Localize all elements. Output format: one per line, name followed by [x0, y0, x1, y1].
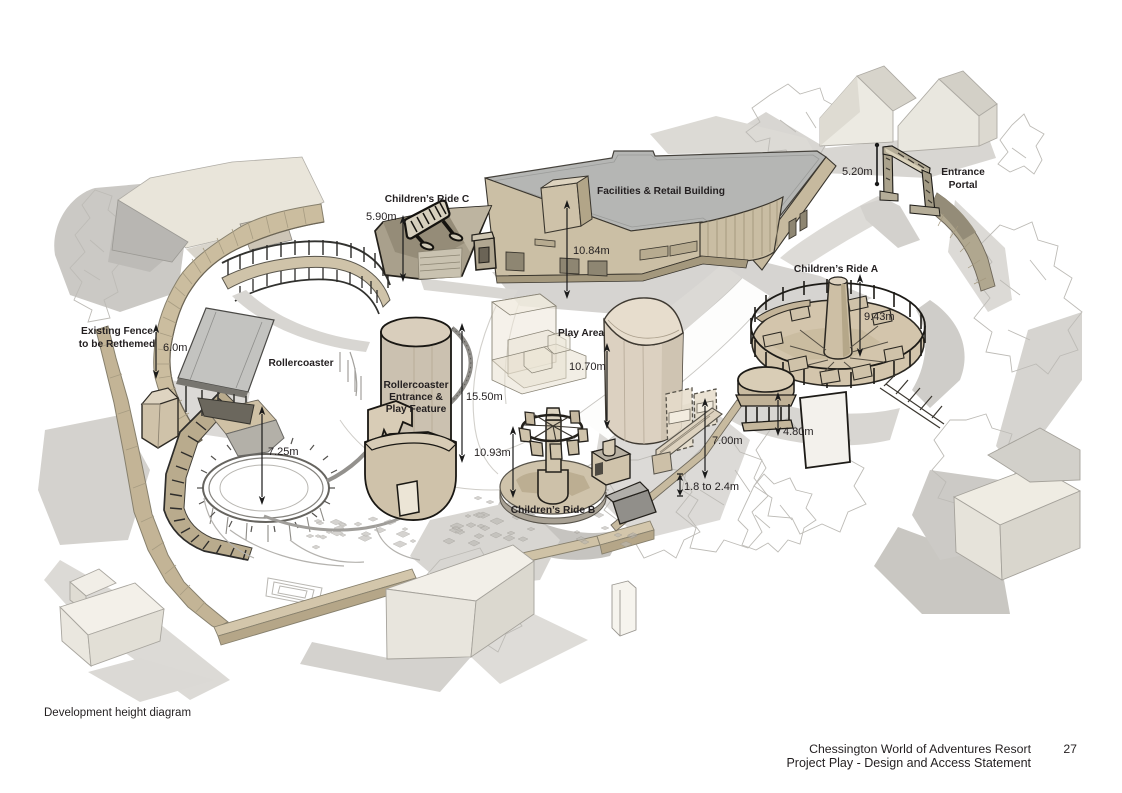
svg-text:10.70m: 10.70m: [569, 361, 606, 373]
svg-text:7.00m: 7.00m: [712, 435, 743, 447]
svg-text:Entrance &: Entrance &: [389, 392, 443, 403]
svg-text:10.93m: 10.93m: [474, 447, 511, 459]
svg-text:Children’s Ride B: Children’s Ride B: [511, 505, 596, 516]
svg-text:6.0m: 6.0m: [163, 342, 187, 354]
svg-text:Entrance: Entrance: [941, 167, 985, 178]
svg-text:to be Rethemed: to be Rethemed: [79, 339, 155, 350]
svg-text:Children’s Ride C: Children’s Ride C: [385, 194, 470, 205]
svg-text:Rollercoaster: Rollercoaster: [268, 358, 333, 369]
svg-text:10.84m: 10.84m: [573, 245, 610, 257]
svg-text:15.50m: 15.50m: [466, 391, 503, 403]
svg-text:Portal: Portal: [949, 180, 978, 191]
svg-text:Project Play - Design and Acce: Project Play - Design and Access Stateme…: [786, 756, 1031, 770]
svg-text:Play Feature: Play Feature: [386, 404, 447, 415]
svg-text:5.20m: 5.20m: [842, 166, 873, 178]
svg-text:27: 27: [1063, 742, 1077, 756]
svg-text:Development height diagram: Development height diagram: [44, 707, 191, 719]
svg-text:5.90m: 5.90m: [366, 211, 397, 223]
svg-text:Existing Fence: Existing Fence: [81, 326, 153, 337]
svg-text:Children’s Ride A: Children’s Ride A: [794, 264, 879, 275]
svg-text:Facilities & Retail Building: Facilities & Retail Building: [597, 186, 725, 197]
svg-text:Chessington World of Adventure: Chessington World of Adventures Resort: [809, 742, 1031, 756]
svg-text:Rollercoaster: Rollercoaster: [383, 380, 448, 391]
svg-text:4.80m: 4.80m: [783, 426, 814, 438]
svg-text:Play Area: Play Area: [558, 328, 604, 339]
svg-text:9.43m: 9.43m: [864, 311, 895, 323]
svg-text:7.25m: 7.25m: [268, 446, 299, 458]
svg-text:1.8 to 2.4m: 1.8 to 2.4m: [684, 481, 739, 493]
